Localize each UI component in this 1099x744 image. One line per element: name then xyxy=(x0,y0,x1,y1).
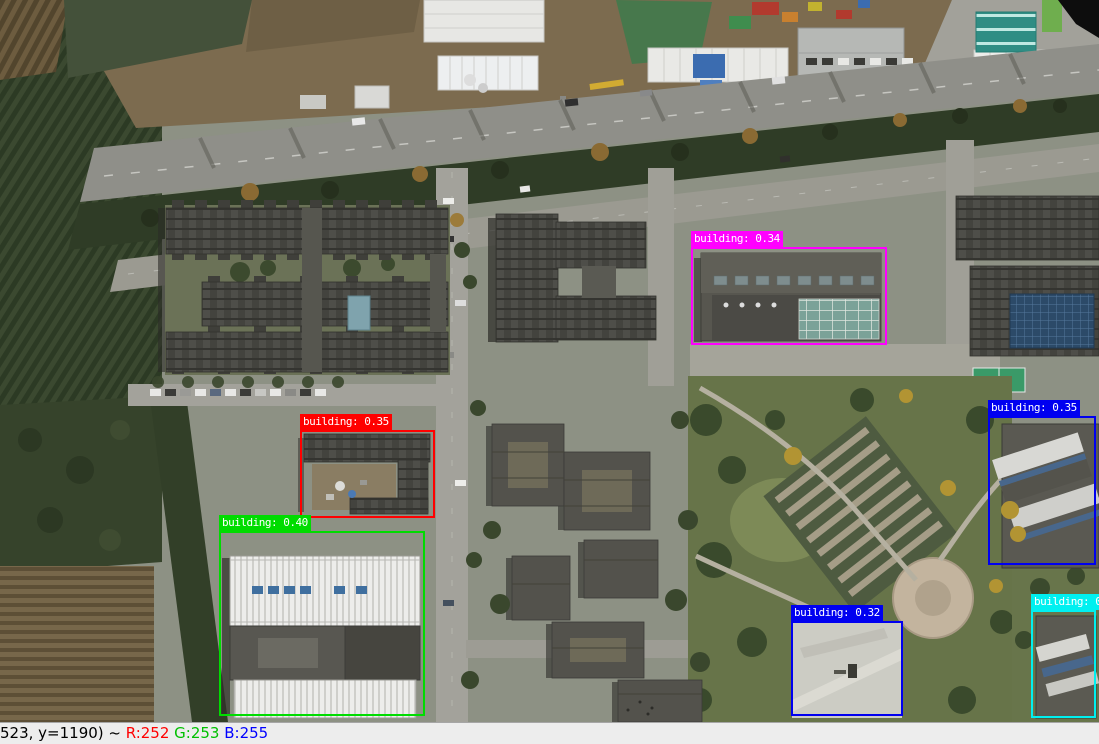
detection-label: building: 0.34 xyxy=(691,231,783,247)
pixel-green-value: G:253 xyxy=(174,724,224,742)
pixel-blue-value: B:255 xyxy=(224,724,268,742)
detection-label: building: 0.33 xyxy=(1031,594,1099,610)
detection-label: building: 0.32 xyxy=(791,605,883,621)
detection-box xyxy=(791,621,903,716)
image-viewer-window: building: 0.34building: 0.35building: 0.… xyxy=(0,0,1099,744)
detection-box xyxy=(219,531,425,716)
detection-box xyxy=(1031,610,1096,718)
detection-label: building: 0.35 xyxy=(988,400,1080,416)
detection-overlay: building: 0.34building: 0.35building: 0.… xyxy=(0,0,1099,722)
status-bar: 523, y=1190) ~ R:252 G:253 B:255 xyxy=(0,722,1099,744)
detection-box xyxy=(300,430,435,518)
detection-box xyxy=(988,416,1096,565)
detection-label: building: 0.40 xyxy=(219,515,311,531)
aerial-image-canvas[interactable]: building: 0.34building: 0.35building: 0.… xyxy=(0,0,1099,722)
cursor-position: 523, y=1190) ~ xyxy=(0,724,126,742)
detection-label: building: 0.35 xyxy=(300,414,392,430)
pixel-red-value: R:252 xyxy=(126,724,174,742)
detection-box xyxy=(691,247,887,345)
